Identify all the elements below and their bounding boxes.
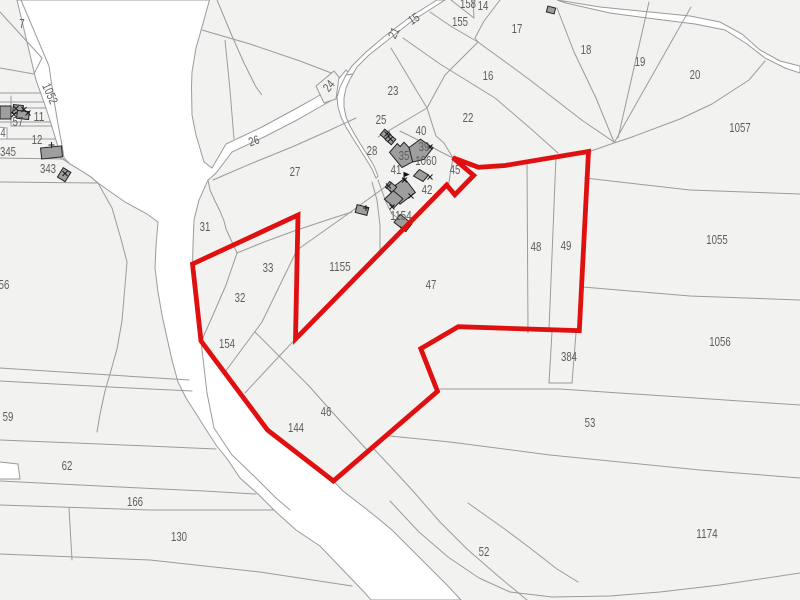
svg-text:41: 41 (391, 163, 402, 177)
svg-text:53: 53 (585, 416, 596, 430)
svg-text:18: 18 (581, 43, 592, 57)
svg-text:1174: 1174 (696, 527, 717, 541)
svg-text:166: 166 (127, 495, 143, 509)
svg-text:130: 130 (171, 530, 187, 544)
svg-text:144: 144 (288, 421, 304, 435)
svg-text:14: 14 (478, 0, 489, 13)
svg-text:4: 4 (0, 126, 5, 140)
svg-text:40: 40 (416, 124, 427, 138)
svg-text:17: 17 (512, 22, 523, 36)
svg-text:45: 45 (450, 163, 461, 177)
svg-text:384: 384 (561, 350, 577, 364)
svg-text:154: 154 (219, 337, 235, 351)
svg-text:22: 22 (463, 111, 474, 125)
svg-text:23: 23 (388, 84, 399, 98)
svg-text:47: 47 (426, 278, 437, 292)
svg-text:32: 32 (235, 291, 246, 305)
svg-text:62: 62 (62, 459, 73, 473)
svg-text:16: 16 (483, 69, 494, 83)
svg-text:1154: 1154 (390, 209, 411, 223)
svg-text:345: 345 (0, 145, 16, 159)
svg-text:27: 27 (290, 165, 301, 179)
svg-text:31: 31 (200, 220, 211, 234)
svg-text:35: 35 (399, 149, 410, 163)
svg-text:20: 20 (690, 68, 701, 82)
svg-text:155: 155 (452, 15, 468, 29)
svg-text:158: 158 (460, 0, 476, 11)
svg-text:52: 52 (479, 545, 490, 559)
svg-text:1155: 1155 (329, 260, 350, 274)
svg-text:25: 25 (376, 113, 387, 127)
svg-text:57: 57 (13, 115, 24, 129)
svg-text:42: 42 (422, 183, 433, 197)
svg-text:7: 7 (19, 17, 24, 31)
svg-text:343: 343 (40, 162, 56, 176)
svg-text:1057: 1057 (729, 121, 750, 135)
svg-text:1060: 1060 (415, 154, 436, 168)
svg-text:39: 39 (419, 140, 430, 154)
svg-text:33: 33 (263, 261, 274, 275)
svg-text:46: 46 (321, 405, 332, 419)
svg-text:11: 11 (34, 110, 45, 124)
svg-text:28: 28 (367, 144, 378, 158)
svg-text:48: 48 (531, 240, 542, 254)
svg-text:12: 12 (32, 133, 43, 147)
svg-text:59: 59 (3, 410, 14, 424)
svg-text:19: 19 (635, 55, 646, 69)
svg-text:49: 49 (561, 239, 572, 253)
svg-text:1056: 1056 (709, 335, 730, 349)
svg-text:56: 56 (0, 278, 9, 292)
svg-text:1055: 1055 (706, 233, 727, 247)
